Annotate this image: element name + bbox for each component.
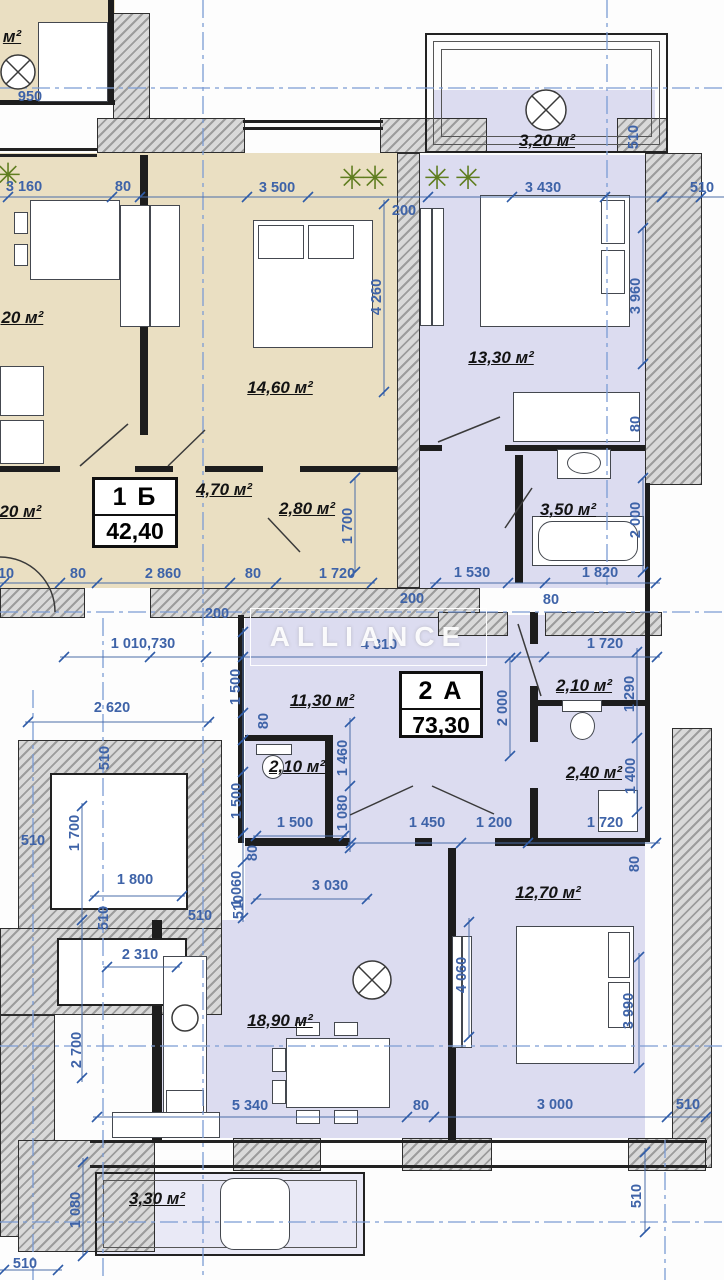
- room-area-label: ,20 м²: [0, 502, 41, 522]
- room-area-label: 3,30 м²: [129, 1189, 185, 1209]
- dimension-label: 1 450: [409, 815, 445, 831]
- room-area-label: 14,60 м²: [247, 378, 313, 398]
- dimension-label: 510: [13, 1256, 37, 1272]
- dimension-label: 2 700: [69, 1032, 85, 1068]
- dimension-label: 2 620: [94, 700, 130, 716]
- dimension-label: 80: [413, 1098, 429, 1114]
- apartment-code: 2 А: [402, 674, 480, 710]
- dimension-label: 80: [256, 713, 272, 729]
- apartment-label-2a: 2 А 73,30: [399, 671, 483, 738]
- dimension-lines: [0, 197, 724, 1270]
- dimension-label: 510: [676, 1097, 700, 1113]
- room-area-label: 2,10 м²: [556, 676, 612, 696]
- dimension-label: 1 460: [335, 740, 351, 776]
- floor-plan: 1 Б 42,40 2 А 73,30 ALLIANCE 9503 160803…: [0, 0, 724, 1280]
- dimension-label: 510: [96, 906, 112, 930]
- dimension-label: 1 700: [340, 508, 356, 544]
- dimension-label: 200: [392, 203, 416, 219]
- dimension-label: 3 500: [259, 180, 295, 196]
- room-area-label: 2,40 м²: [566, 763, 622, 783]
- room-area-label: 13,30 м²: [468, 348, 534, 368]
- dimension-label: 510: [188, 908, 212, 924]
- room-area-label: м²: [3, 27, 21, 47]
- dimension-label: 4 060: [454, 957, 470, 993]
- dimension-label: 510: [690, 180, 714, 196]
- dimension-label: 3 030: [312, 878, 348, 894]
- dimension-label: 80: [628, 416, 644, 432]
- dimension-label: 80: [245, 566, 261, 582]
- dimension-label: 1 010,730: [111, 636, 176, 652]
- dimension-label: 1 290: [622, 676, 638, 712]
- apartment-area: 42,40: [95, 516, 175, 547]
- dimension-label: 80: [627, 856, 643, 872]
- room-area-label: 11,30 м²: [290, 691, 354, 711]
- room-area-label: 3,20 м²: [519, 131, 575, 151]
- dimension-label: 510: [97, 746, 113, 770]
- dimension-label: 5 340: [232, 1098, 268, 1114]
- dimension-label: 1 720: [319, 566, 355, 582]
- dimension-label: 1 820: [582, 565, 618, 581]
- room-area-label: 12,70 м²: [515, 883, 581, 903]
- dimension-label: 2 000: [628, 502, 644, 538]
- dimension-label: 1 500: [228, 669, 244, 705]
- apartment-area: 73,30: [402, 710, 480, 741]
- dimension-label: 80: [70, 566, 86, 582]
- dimension-label: 4 260: [369, 279, 385, 315]
- dimension-label: 80: [543, 592, 559, 608]
- room-area-label: 18,90 м²: [247, 1011, 313, 1031]
- apartment-label-1b: 1 Б 42,40: [92, 477, 178, 548]
- kitchen-sink-icon: [172, 1005, 198, 1031]
- dimension-label: 510: [629, 1184, 645, 1208]
- dimension-label: 3 990: [621, 993, 637, 1029]
- dimension-label: 510: [21, 833, 45, 849]
- dimension-label: 1 200: [476, 815, 512, 831]
- dimension-label: 510: [0, 566, 14, 582]
- dimension-label: 1 500: [277, 815, 313, 831]
- room-area-label: 2,10 м²: [269, 757, 325, 777]
- dimension-label: 1 530: [454, 565, 490, 581]
- dimension-label: 80: [245, 845, 261, 861]
- dimension-label: 1 500: [229, 783, 245, 819]
- dimension-label: 2 860: [145, 566, 181, 582]
- dimension-label: 3 160: [6, 179, 42, 195]
- dimension-label: 3 960: [628, 278, 644, 314]
- dimension-label: 200: [400, 591, 424, 607]
- dimension-label: 1 080: [68, 1192, 84, 1228]
- room-area-label: 2,80 м²: [279, 499, 335, 519]
- room-area-label: 3,50 м²: [540, 500, 596, 520]
- dimension-label: 80: [115, 179, 131, 195]
- room-area-label: 4,70 м²: [196, 480, 252, 500]
- dimension-label: 1 080: [335, 795, 351, 831]
- dimension-label: 1 720: [587, 815, 623, 831]
- dimension-label: 3 430: [525, 180, 561, 196]
- dimension-label: 1 400: [623, 758, 639, 794]
- dimension-label: 510: [626, 125, 642, 149]
- room-area-label: ,20 м²: [0, 308, 43, 328]
- dimension-label: 1 700: [67, 815, 83, 851]
- dimension-ticks: [0, 192, 711, 1275]
- dimension-label: 2 000: [495, 690, 511, 726]
- dimension-label: 1 800: [117, 872, 153, 888]
- dimension-label: 1 720: [587, 636, 623, 652]
- dimension-label: 2 310: [122, 947, 158, 963]
- dimension-label: 510: [231, 895, 247, 919]
- dimension-label: 3 000: [537, 1097, 573, 1113]
- dimension-label: 950: [18, 89, 42, 105]
- apartment-code: 1 Б: [95, 480, 175, 516]
- dimension-label: 200: [205, 606, 229, 622]
- vent-shaft-icon: [1, 55, 566, 1031]
- watermark: ALLIANCE: [250, 608, 487, 666]
